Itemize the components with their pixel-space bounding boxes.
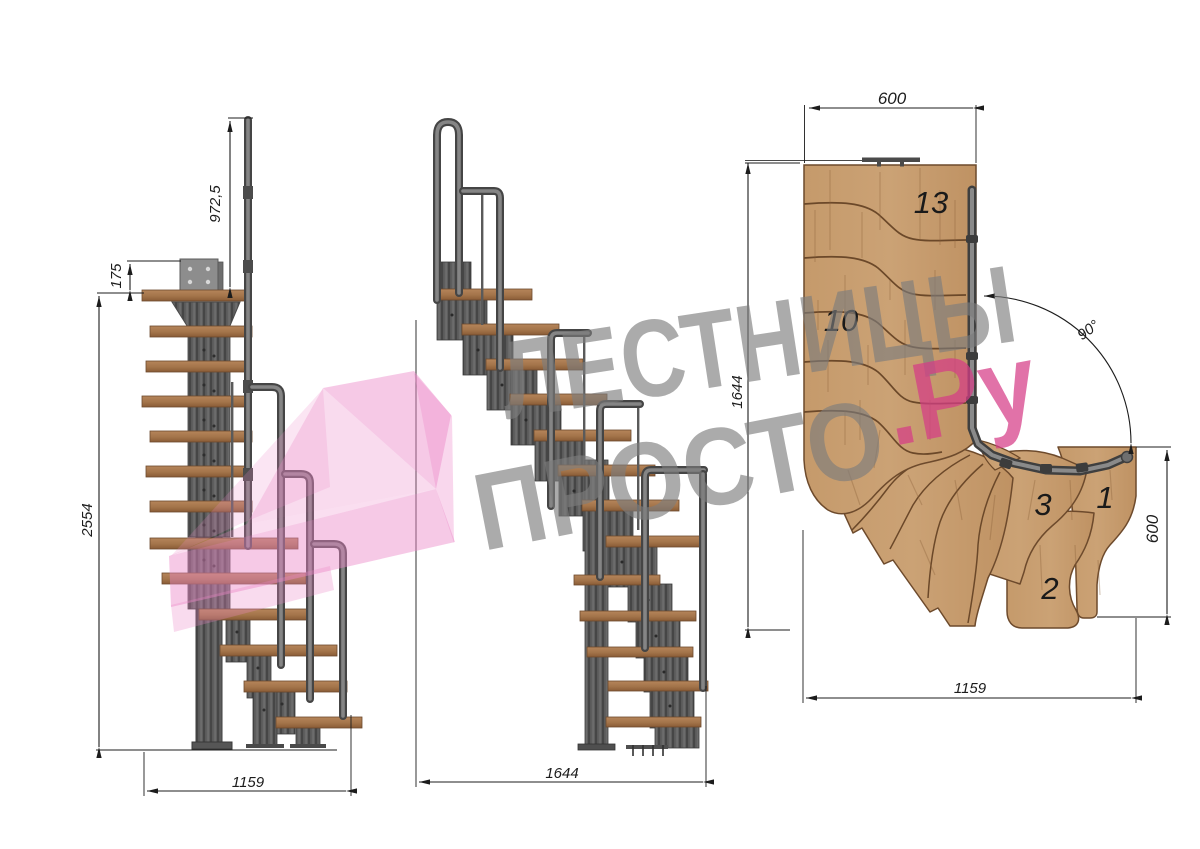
svg-text:2: 2 — [1040, 571, 1058, 606]
svg-text:2554: 2554 — [79, 503, 96, 537]
svg-text:972,5: 972,5 — [207, 185, 224, 223]
svg-text:175: 175 — [108, 263, 125, 289]
svg-text:3: 3 — [1034, 487, 1051, 522]
svg-text:13: 13 — [914, 185, 948, 220]
svg-text:1644: 1644 — [545, 765, 578, 782]
svg-text:1159: 1159 — [954, 680, 987, 697]
svg-text:1159: 1159 — [232, 774, 265, 791]
svg-text:600: 600 — [878, 89, 907, 108]
svg-text:1: 1 — [1096, 480, 1113, 515]
svg-text:600: 600 — [1143, 514, 1162, 543]
